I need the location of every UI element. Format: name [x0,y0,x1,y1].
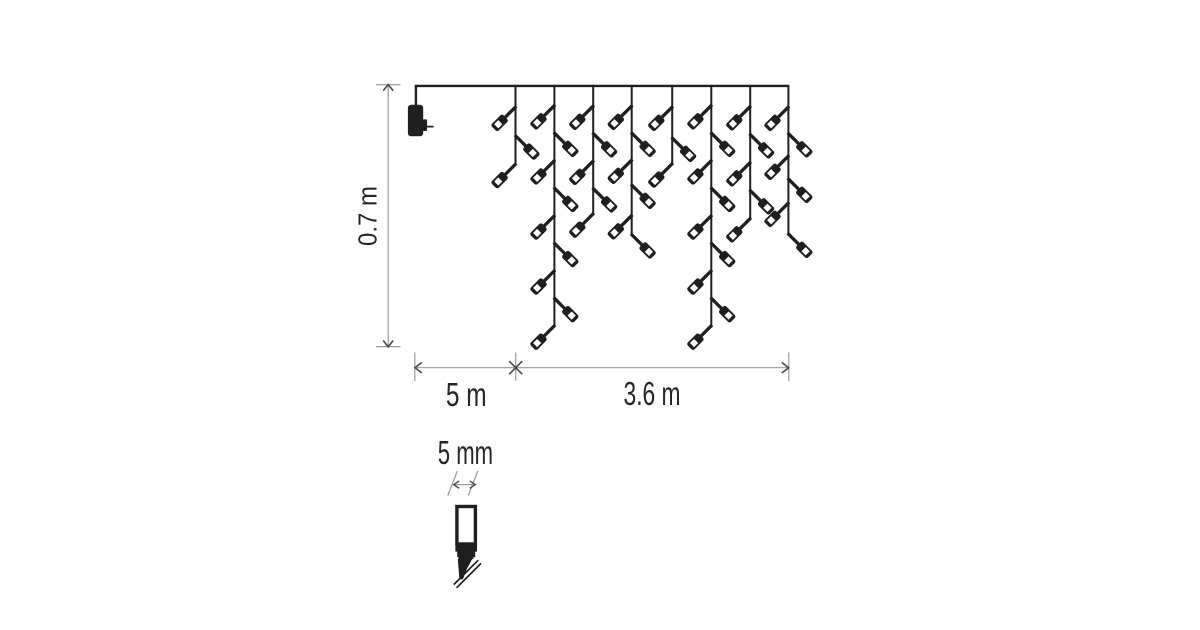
svg-text:5 mm: 5 mm [438,434,493,470]
svg-text:0.7 m: 0.7 m [355,186,383,246]
svg-text:3.6 m: 3.6 m [624,376,681,413]
svg-text:5 m: 5 m [446,378,487,414]
